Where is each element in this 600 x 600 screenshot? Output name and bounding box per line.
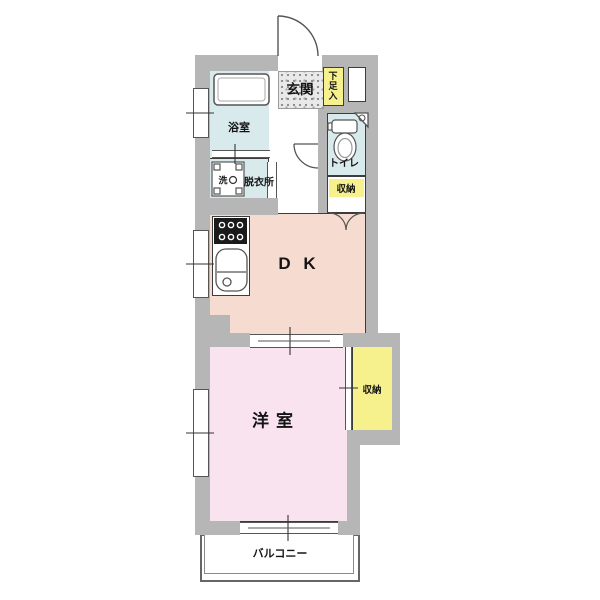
label-washing-machine: 洗 [218,174,227,187]
label-toilet: トイレ [329,155,359,170]
label-balcony: バルコニー [253,545,308,561]
wall-dressing-dk [195,198,278,215]
wall-dk-bottom-left [195,333,250,347]
window-bathroom [193,88,209,138]
floorplan-canvas: 玄関 下足入 浴室 洗 脱衣所 トイレ 収納 D K 洋室 収納 バルコニー [0,0,600,600]
balcony-window-slider [240,522,338,534]
window-western [193,389,209,477]
label-dining-kitchen: D K [278,254,319,274]
window-kitchen [193,230,209,298]
label-dressing-room: 脱衣所 [244,174,274,189]
bath-sliding-door [212,150,270,158]
wall-bottom-right [338,521,360,535]
room-western [208,346,348,522]
label-bathroom: 浴室 [228,119,250,135]
wall-bottom-left [195,521,240,535]
dk-western-slider [250,334,343,348]
label-hall-storage: 収納 [336,181,355,195]
label-bedroom-storage: 収納 [362,382,381,396]
label-western-room: 洋室 [252,407,300,432]
label-entrance: 玄関 [287,78,314,98]
entrance-door-arc [278,16,318,56]
wall-right-main [366,110,378,347]
kitchen-counter [212,216,250,296]
wall-closet-right [392,333,400,445]
room-bathroom [208,70,273,160]
label-shoe-cabinet: 下足入 [327,71,340,101]
storage-slider [345,347,352,430]
meter-box [348,67,366,102]
wall-toilet-partition [318,110,327,213]
